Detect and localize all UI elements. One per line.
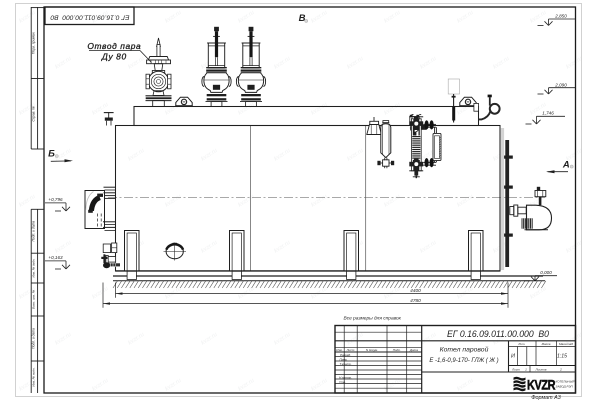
svg-text:Инв. № подл.: Инв. № подл. bbox=[32, 367, 36, 386]
svg-text:Формат А3: Формат А3 bbox=[531, 395, 561, 400]
svg-text:+0,163: +0,163 bbox=[48, 255, 63, 260]
svg-text:Подп. и дата: Подп. и дата bbox=[32, 328, 36, 349]
svg-text:Масштаб: Масштаб bbox=[559, 342, 573, 346]
svg-text:Листов: Листов bbox=[535, 368, 547, 372]
svg-text:Все размеры для справок: Все размеры для справок bbox=[344, 315, 402, 321]
svg-text:2,850: 2,850 bbox=[554, 14, 567, 19]
svg-text:Утв.: Утв. bbox=[339, 380, 346, 384]
svg-text:Т.контр.: Т.контр. bbox=[339, 362, 351, 366]
svg-text:Отвод пара: Отвод пара bbox=[87, 41, 141, 51]
svg-text:Разраб.: Разраб. bbox=[340, 353, 351, 357]
svg-text:А: А bbox=[562, 160, 570, 171]
svg-text:Е -1,6-0,9-170- ГЛЖ ( Ж ): Е -1,6-0,9-170- ГЛЖ ( Ж ) bbox=[429, 358, 498, 364]
svg-text:Справ. №: Справ. № bbox=[32, 106, 36, 122]
svg-text:Б: Б bbox=[48, 149, 55, 160]
svg-text:Лист: Лист bbox=[511, 368, 520, 372]
svg-text:Лит.: Лит. bbox=[517, 342, 525, 346]
svg-text:4780: 4780 bbox=[410, 298, 421, 304]
svg-text:ЗАВОД РЭП: ЗАВОД РЭП bbox=[556, 384, 574, 388]
svg-text:КОТЕЛЬНЫЙ: КОТЕЛЬНЫЙ bbox=[556, 379, 576, 383]
svg-text:И: И bbox=[511, 354, 515, 360]
svg-text:4400: 4400 bbox=[410, 288, 421, 294]
svg-text:ЕГ 0.16.09.011.00.000 В0: ЕГ 0.16.09.011.00.000 В0 bbox=[447, 329, 549, 339]
svg-text:2,090: 2,090 bbox=[554, 82, 567, 87]
svg-text:Масса: Масса bbox=[542, 342, 551, 346]
svg-text:Н.контр.: Н.контр. bbox=[339, 375, 352, 379]
svg-text:1:15: 1:15 bbox=[557, 354, 567, 360]
svg-text:Взам. инв. №: Взам. инв. № bbox=[32, 289, 36, 309]
svg-text:В: В bbox=[299, 13, 306, 24]
svg-text:2: 2 bbox=[559, 368, 562, 372]
svg-text:Пров.: Пров. bbox=[340, 357, 348, 361]
svg-text:ЕГ 0.16.09.011.00.000 В0: ЕГ 0.16.09.011.00.000 В0 bbox=[50, 14, 129, 21]
svg-text:Изм.: Изм. bbox=[336, 348, 343, 352]
svg-text:Ду 80: Ду 80 bbox=[101, 51, 127, 61]
svg-text:Подп.: Подп. bbox=[393, 348, 401, 352]
svg-text:Лист: Лист bbox=[346, 348, 355, 352]
svg-text:Дата: Дата bbox=[409, 348, 418, 352]
svg-text:1,746: 1,746 bbox=[542, 111, 554, 116]
svg-text:KVZR: KVZR bbox=[527, 377, 555, 393]
svg-text:+0,796: +0,796 bbox=[48, 197, 63, 202]
svg-text:Инв. № дубл.: Инв. № дубл. bbox=[32, 258, 36, 277]
svg-text:Котел паровой: Котел паровой bbox=[440, 345, 489, 353]
svg-text:N докум.: N докум. bbox=[366, 348, 378, 352]
svg-text:Перв. примен.: Перв. примен. bbox=[32, 31, 36, 54]
svg-text:0,000: 0,000 bbox=[540, 270, 552, 275]
svg-text:Подп. и дата: Подп. и дата bbox=[32, 221, 36, 242]
